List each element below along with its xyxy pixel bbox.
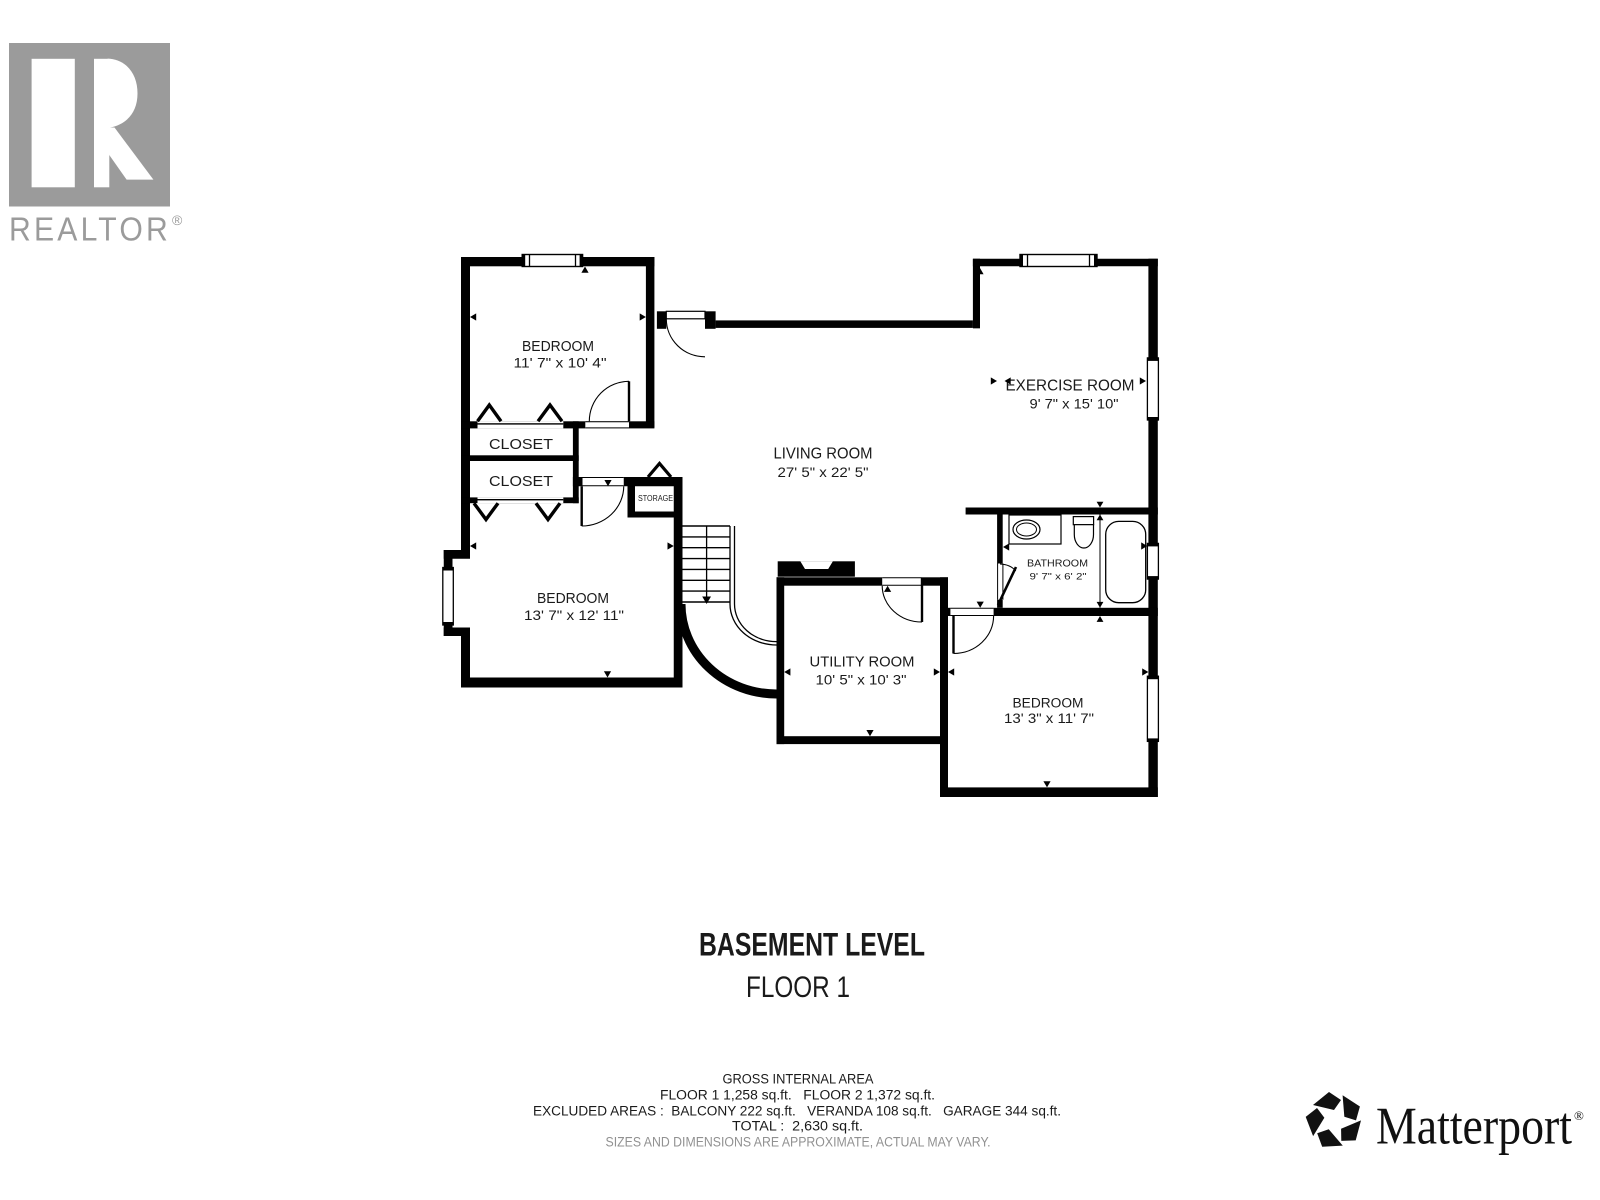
svg-text:BEDROOM: BEDROOM [1013, 696, 1084, 712]
svg-text:STORAGE: STORAGE [638, 494, 673, 503]
svg-text:BEDROOM: BEDROOM [522, 338, 594, 355]
svg-text:BASEMENT LEVEL: BASEMENT LEVEL [699, 927, 925, 963]
svg-text:13' 3" x 11' 7": 13' 3" x 11' 7" [1004, 711, 1094, 726]
svg-text:EXCLUDED AREAS : BALCONY 222: EXCLUDED AREAS : BALCONY 222 sq.ft. VERA… [533, 1104, 1061, 1119]
svg-text:TOTAL : 2,630 sq.ft.: TOTAL : 2,630 sq.ft. [732, 1119, 863, 1134]
svg-text:GROSS INTERNAL AREA: GROSS INTERNAL AREA [723, 1072, 874, 1087]
svg-text:11' 7" x 10' 4": 11' 7" x 10' 4" [514, 356, 607, 371]
svg-text:FLOOR 1: FLOOR 1 [746, 971, 850, 1004]
svg-text:LIVING ROOM: LIVING ROOM [774, 446, 873, 463]
svg-text:EXERCISE ROOM: EXERCISE ROOM [1006, 378, 1135, 395]
svg-text:FLOOR 1 1,258 sq.ft. FLOOR 2: FLOOR 1 1,258 sq.ft. FLOOR 2 1,372 sq.ft… [660, 1088, 935, 1103]
svg-text:10' 5" x 10' 3": 10' 5" x 10' 3" [816, 673, 907, 688]
svg-text:®: ® [172, 212, 183, 228]
svg-text:BATHROOM: BATHROOM [1027, 559, 1088, 570]
svg-text:9' 7" x 6' 2": 9' 7" x 6' 2" [1030, 572, 1087, 582]
svg-text:9' 7" x 15' 10": 9' 7" x 15' 10" [1030, 397, 1119, 412]
svg-text:13' 7" x 12' 11": 13' 7" x 12' 11" [524, 608, 624, 623]
svg-text:27' 5" x 22' 5": 27' 5" x 22' 5" [778, 465, 869, 480]
svg-text:CLOSET: CLOSET [489, 436, 553, 453]
svg-text:Matterport: Matterport [1376, 1098, 1572, 1156]
svg-text:®: ® [1574, 1108, 1584, 1123]
svg-text:CLOSET: CLOSET [489, 473, 553, 490]
svg-text:SIZES AND DIMENSIONS ARE APPRO: SIZES AND DIMENSIONS ARE APPROXIMATE, AC… [606, 1135, 991, 1150]
svg-text:BEDROOM: BEDROOM [537, 590, 609, 607]
svg-text:UTILITY ROOM: UTILITY ROOM [810, 655, 915, 671]
svg-text:REALTOR: REALTOR [9, 211, 171, 248]
